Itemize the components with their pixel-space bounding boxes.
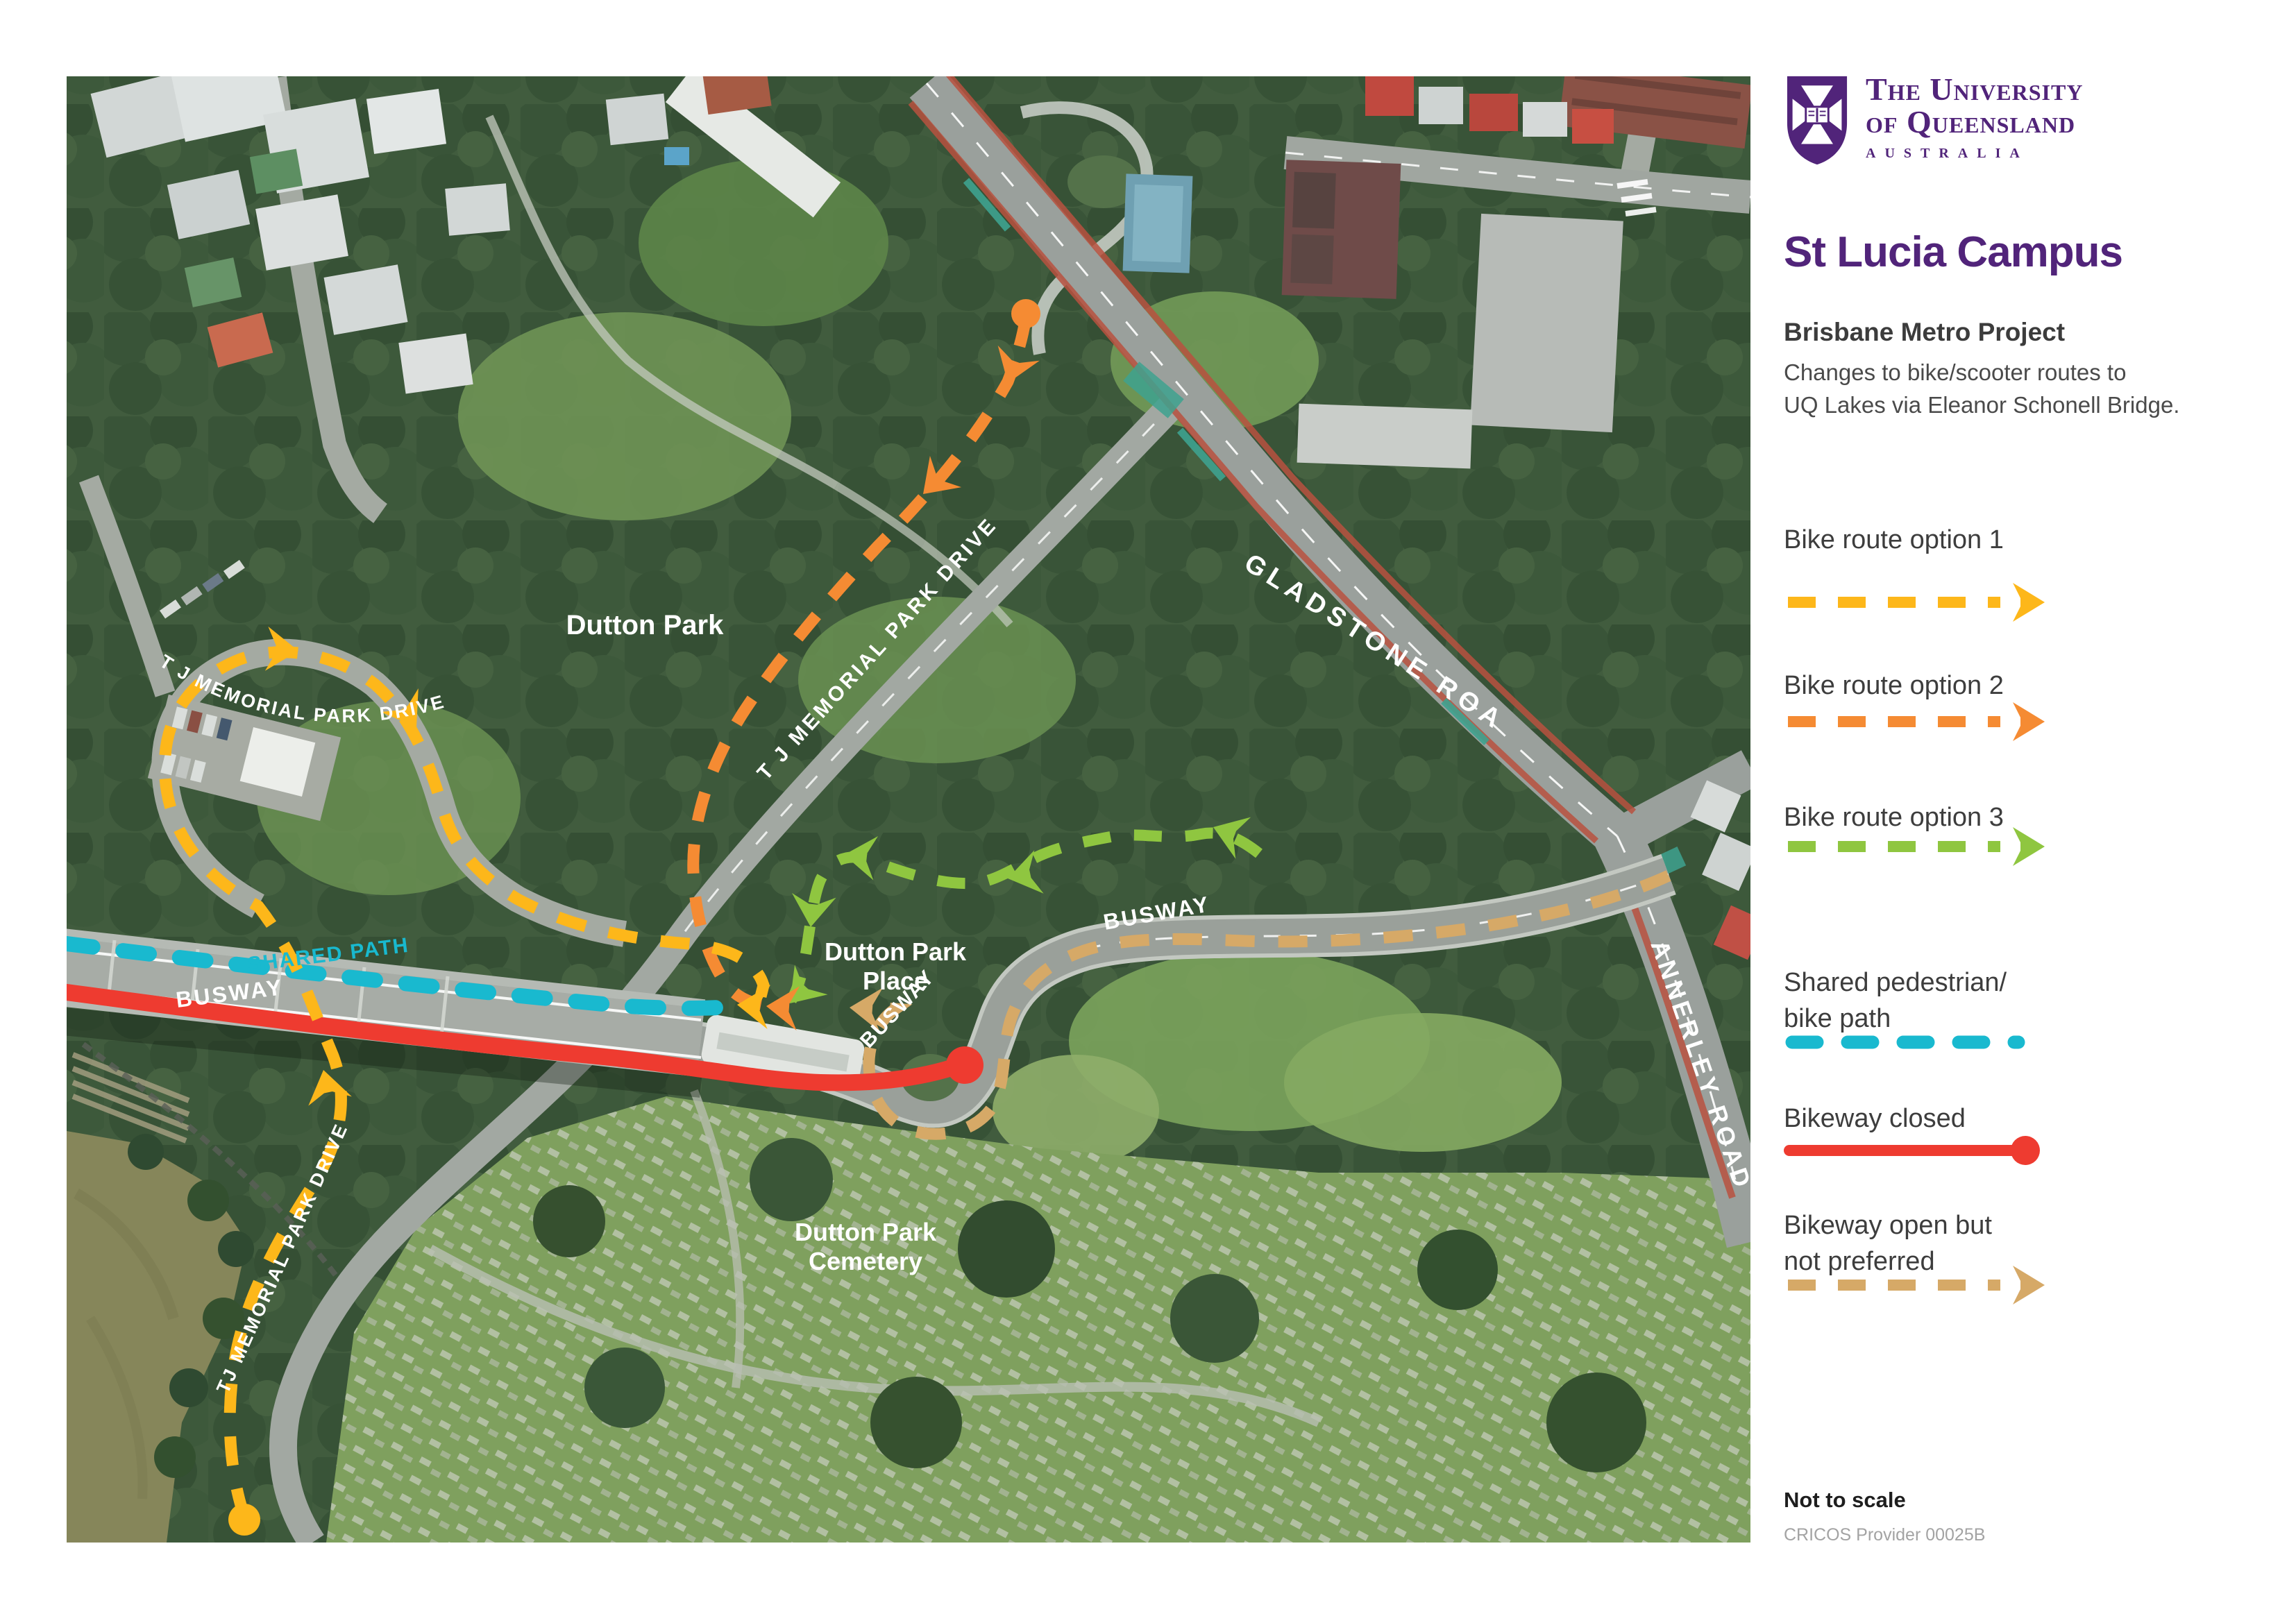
legend-label-option2: Bike route option 2 <box>1784 668 2004 704</box>
poster-page: Dutton Park T J MEMORIAL PARK DRIVE T J … <box>0 0 2296 1623</box>
label-cemetery-1: Dutton Park <box>795 1218 937 1246</box>
legend-label-option1: Bike route option 1 <box>1784 522 2004 558</box>
legend-swatch-bikeway-closed <box>1784 1131 2054 1170</box>
uq-wordmark: The University of Queensland Australia <box>1866 74 2083 162</box>
cricos-provider: CRICOS Provider 00025B <box>1784 1525 1985 1545</box>
label-dutton-park-place-2: Place <box>863 967 928 995</box>
legend-swatch-option2 <box>1784 702 2054 741</box>
project-description: Changes to bike/scooter routes to UQ Lak… <box>1784 357 2179 422</box>
project-description-line2: UQ Lakes via Eleanor Schonell Bridge. <box>1784 389 2179 422</box>
legend-swatch-option3 <box>1784 827 2054 866</box>
scale-note: Not to scale <box>1784 1488 1906 1513</box>
uq-country: Australia <box>1866 146 2083 162</box>
campus-title: St Lucia Campus <box>1784 228 2122 277</box>
uq-shield-icon <box>1784 74 1850 167</box>
project-title: Brisbane Metro Project <box>1784 318 2065 347</box>
uq-logo: The University of Queensland Australia <box>1784 74 2083 167</box>
uq-wordmark-line1: The University <box>1866 74 2083 106</box>
uq-wordmark-line2: of Queensland <box>1866 106 2083 139</box>
sidebar: The University of Queensland Australia S… <box>1784 0 2270 1623</box>
legend-label-shared-path-line1: Shared pedestrian/ <box>1784 965 2007 1001</box>
label-dutton-park: Dutton Park <box>566 610 724 640</box>
legend-swatch-shared-path <box>1784 1023 2054 1062</box>
legend-label-open-not-preferred-line1: Bikeway open but <box>1784 1207 1992 1243</box>
project-description-line1: Changes to bike/scooter routes to <box>1784 357 2179 389</box>
label-cemetery-2: Cemetery <box>809 1247 922 1275</box>
aerial-map: Dutton Park T J MEMORIAL PARK DRIVE T J … <box>67 76 1750 1543</box>
map-svg: Dutton Park T J MEMORIAL PARK DRIVE T J … <box>67 76 1750 1543</box>
legend-swatch-option1 <box>1784 583 2054 622</box>
legend-swatch-open-not-preferred <box>1784 1266 2054 1305</box>
label-dutton-park-place-1: Dutton Park <box>825 937 967 966</box>
